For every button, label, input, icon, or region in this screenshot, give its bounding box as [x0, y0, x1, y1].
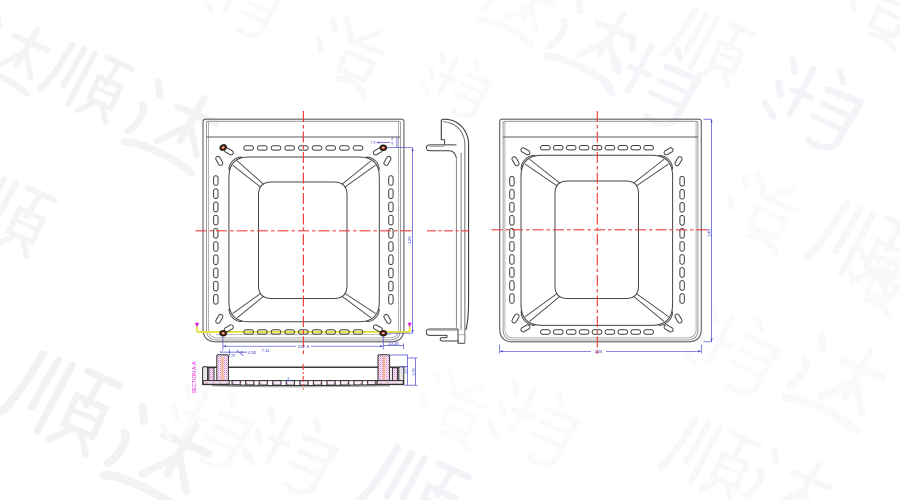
svg-text:125: 125: [407, 236, 412, 244]
svg-text:3.28: 3.28: [411, 369, 415, 376]
svg-text:7.11: 7.11: [262, 348, 271, 353]
svg-text:107.5: 107.5: [298, 344, 310, 349]
svg-text:8: 8: [391, 142, 393, 146]
svg-text:4.50: 4.50: [248, 350, 257, 355]
svg-text:149: 149: [706, 229, 711, 237]
svg-text:134: 134: [595, 349, 603, 354]
svg-text:8: 8: [391, 137, 393, 141]
svg-text:13.25: 13.25: [388, 341, 399, 346]
svg-text:13.5: 13.5: [403, 367, 407, 374]
svg-text:2.25: 2.25: [229, 353, 236, 357]
svg-text:7.5: 7.5: [370, 141, 375, 145]
svg-text:SECTION A-A: SECTION A-A: [192, 361, 198, 393]
